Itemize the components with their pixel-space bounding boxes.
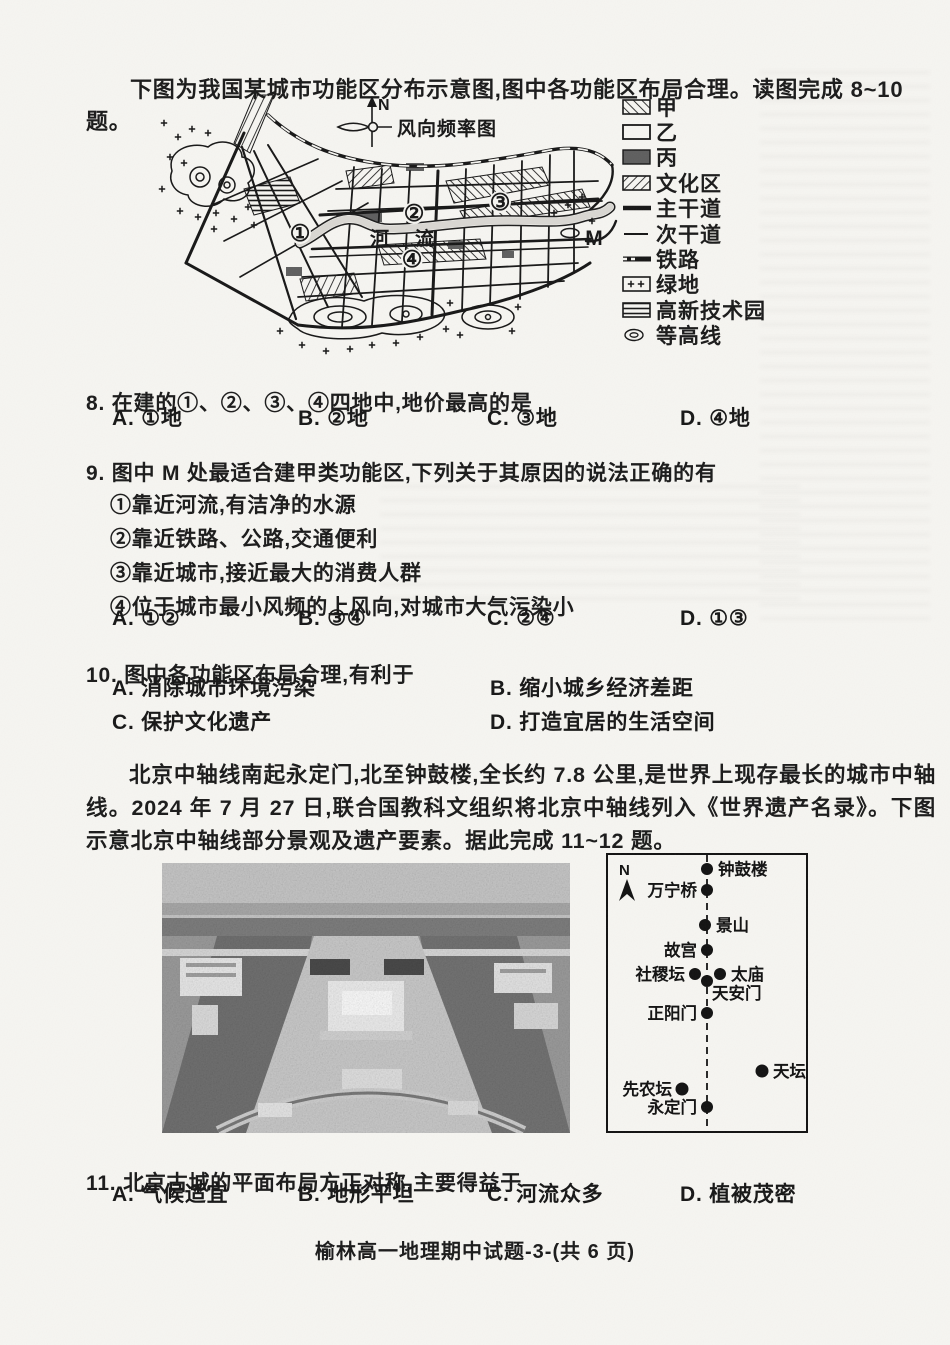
river-label: 河流: [370, 227, 460, 250]
q8-option-c: C. ③地: [487, 402, 680, 432]
q8-options: A. ①地 B. ②地 C. ③地 D. ④地: [86, 402, 946, 432]
q9-option-d: D. ①③: [680, 606, 946, 631]
wind-rose-label: 风向频率图: [397, 117, 497, 140]
landmark-label: 永定门: [647, 1097, 698, 1117]
landmark-label: 钟鼓楼: [718, 859, 768, 879]
legend-item: 次干道: [622, 221, 766, 246]
q9-option-a: A. ①②: [112, 606, 298, 631]
exam-page: 下图为我国某城市功能区分布示意图,图中各功能区布局合理。读图完成 8~10 题。…: [0, 0, 950, 1345]
q10-option-b: B. 缩小城乡经济差距: [490, 672, 946, 702]
legend-item: 高新技术园: [622, 297, 766, 322]
dark-fill-swatch: [622, 148, 656, 166]
landmark-label: 天坛: [773, 1062, 807, 1081]
q11-option-c: C. 河流众多: [487, 1178, 680, 1208]
q11-option-b: B. 地形平坦: [298, 1178, 487, 1208]
forward-hatch-swatch: [622, 98, 656, 116]
zone-2-label: ②: [404, 200, 425, 226]
legend-item: 乙: [622, 119, 766, 144]
q9-option-b: B. ③④: [298, 606, 487, 631]
q9-item-3: ③靠近城市,接近最大的消费人群: [110, 557, 870, 587]
map-north-label: N: [378, 97, 390, 114]
landmark-label: 太庙: [731, 964, 764, 984]
q9-options: A. ①② B. ③④ C. ②④ D. ①③: [86, 606, 946, 631]
q11-option-d: D. 植被茂密: [680, 1178, 946, 1208]
q10-option-a: A. 消除城市环境污染: [112, 672, 490, 702]
north-arrow-icon: [367, 96, 377, 107]
landmark-label: 故宫: [664, 940, 697, 960]
q9-item-1: ①靠近河流,有洁净的水源: [110, 489, 870, 519]
page-footer: 榆林高一地理期中试题-3-(共 6 页): [0, 1235, 950, 1264]
landmark-label: 社稷坛: [635, 964, 686, 984]
landmark-label: 天安门: [712, 983, 762, 1003]
legend-item: 甲: [622, 94, 766, 119]
city-map-figure: N 风向频率图: [150, 93, 620, 357]
q9-option-c: C. ②④: [487, 606, 680, 631]
q11-options: A. 气候适宜 B. 地形平坦 C. 河流众多 D. 植被茂密: [86, 1178, 946, 1208]
q10-option-c: C. 保护文化遗产: [112, 706, 490, 736]
q8-option-d: D. ④地: [680, 402, 946, 432]
q10-option-d: D. 打造宜居的生活空间: [490, 706, 946, 736]
zone-1-label: ①: [290, 220, 311, 246]
striped-box-swatch: [622, 301, 656, 319]
legend-item: 文化区: [622, 170, 766, 195]
landmark-label: 先农坛: [623, 1079, 673, 1099]
legend-item: 等高线: [622, 323, 766, 348]
legend-item: 绿地: [622, 272, 766, 297]
thin-line-swatch: [622, 225, 656, 243]
landmark-label: 正阳门: [648, 1003, 698, 1023]
plus-box-swatch: [622, 275, 656, 293]
zone-3-label: ③: [490, 189, 511, 215]
site-m-label: M: [585, 227, 603, 250]
legend-item: 铁路: [622, 246, 766, 271]
thick-line-swatch: [622, 199, 656, 217]
q8-option-a: A. ①地: [112, 402, 298, 432]
q10-options-row2: C. 保护文化遗产 D. 打造宜居的生活空间: [86, 706, 946, 736]
landmark-label: 万宁桥: [647, 880, 698, 900]
empty-box-swatch: [622, 123, 656, 141]
landmark-label: 景山: [716, 916, 749, 935]
diagram-north-label: N: [619, 862, 630, 879]
back-hatch-swatch: [622, 174, 656, 192]
map-legend: 甲 乙 丙 文化区 主干道 次干道 铁路 绿地: [622, 94, 766, 348]
q9-stem: 9. 图中 M 处最适合建甲类功能区,下列关于其原因的说法正确的有: [86, 457, 946, 487]
central-axis-diagram: N 钟鼓楼 万宁桥 景山 故宫 社稷坛 太庙 天安门 正阳门 天坛 先农坛 永定…: [606, 853, 808, 1133]
q11-option-a: A. 气候适宜: [112, 1178, 298, 1208]
q10-options-row1: A. 消除城市环境污染 B. 缩小城乡经济差距: [86, 672, 946, 702]
contour-oval-swatch: [622, 326, 656, 344]
legend-label: 等高线: [656, 320, 722, 350]
q9-item-2: ②靠近铁路、公路,交通便利: [110, 523, 870, 553]
q8-option-b: B. ②地: [298, 402, 487, 432]
legend-item: 丙: [622, 145, 766, 170]
railway-line-swatch: [622, 250, 656, 268]
beijing-aerial-photo: [162, 863, 570, 1133]
passage-q11-12: 北京中轴线南起永定门,北至钟鼓楼,全长约 7.8 公里,是世界上现存最长的城市中…: [86, 759, 936, 858]
legend-item: 主干道: [622, 196, 766, 221]
